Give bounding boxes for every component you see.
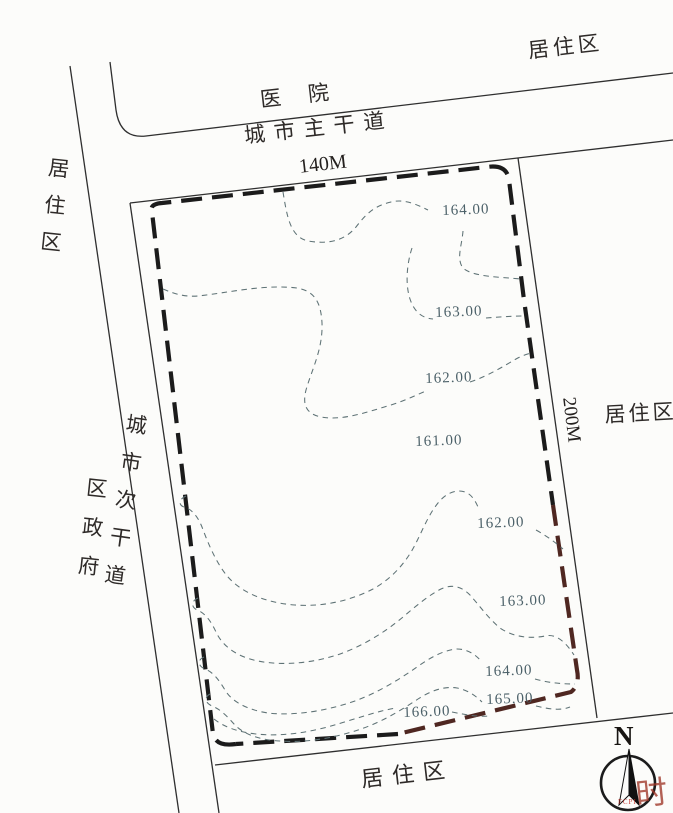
contour-label-161: 161.00 bbox=[415, 433, 463, 450]
site-plan-drawing: 居住区 医院 城市主干道 140M 居住区 区政府 城市次干道 200M 居住区… bbox=[0, 0, 673, 813]
watermark-brand: 时代 bbox=[633, 766, 673, 813]
contour-label-162-upper: 162.00 bbox=[425, 370, 473, 387]
contour-line-162-lower-left bbox=[180, 491, 478, 605]
site-boundary-main bbox=[151, 167, 553, 745]
contour-line-162-upper-left bbox=[163, 287, 426, 418]
contour-label-164-upper: 164.00 bbox=[442, 202, 490, 219]
contour-line-165-right bbox=[536, 706, 570, 709]
watermark-stamp: FCPI bbox=[618, 798, 637, 806]
contour-line-163-upper-left bbox=[407, 248, 433, 319]
contour-lines bbox=[163, 192, 575, 741]
depth-dimension-label: 200M bbox=[558, 396, 583, 443]
contour-line-164-upper-right bbox=[460, 231, 521, 279]
contour-line-162-upper-right bbox=[470, 353, 531, 382]
contour-line-164-upper-left bbox=[283, 192, 428, 242]
contour-label-163-upper: 163.00 bbox=[435, 304, 483, 321]
right-parcel-edge bbox=[518, 158, 597, 718]
secondary-road-right-edge bbox=[130, 203, 219, 813]
contour-line-163-upper-right bbox=[486, 316, 525, 318]
north-label: N bbox=[614, 722, 634, 750]
contour-label-164-lower: 164.00 bbox=[485, 663, 533, 680]
contour-label-162-lower: 162.00 bbox=[477, 515, 525, 532]
residential-area-label-right: 居住区 bbox=[604, 400, 673, 426]
contour-line-164-lower-right bbox=[535, 679, 575, 684]
main-road-lower-edge bbox=[130, 140, 673, 203]
contour-label-166: 166.00 bbox=[403, 704, 451, 721]
contour-label-163-lower: 163.00 bbox=[499, 593, 547, 610]
site-boundary bbox=[151, 167, 577, 745]
contour-label-165: 165.00 bbox=[486, 691, 534, 708]
site-boundary-bottom-left bbox=[236, 734, 398, 744]
